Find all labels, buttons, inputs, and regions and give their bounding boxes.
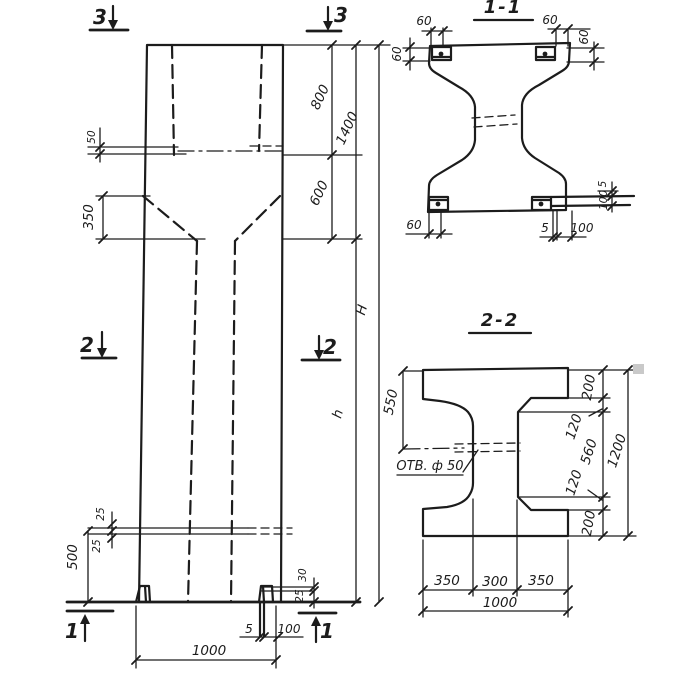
marker-label: 3 xyxy=(93,5,107,29)
marker-arrow-head xyxy=(80,614,90,624)
section-marker-1-right: 1 xyxy=(299,613,336,643)
anchor-dot-bottom-right xyxy=(539,202,544,207)
dim-label-1400: 1400 xyxy=(333,109,362,147)
section-2-2-view: 2-2 ОТВ. ф 50 550 200 120 560 120 200 12… xyxy=(381,310,644,617)
hole-centerline xyxy=(404,448,464,449)
marker-arrow-head xyxy=(108,20,118,30)
dim-label-100-foot: 100 xyxy=(278,622,301,636)
hole-leader xyxy=(463,450,478,472)
dim-label-30: 30 xyxy=(297,568,309,582)
section-marker-3-right: 3 xyxy=(307,3,348,31)
marker-label: 2 xyxy=(323,335,337,359)
section-1-1-outline xyxy=(428,43,570,212)
dim-label-h: h xyxy=(329,408,347,420)
marker-label: 2 xyxy=(80,333,94,357)
dim-label-200-top: 200 xyxy=(579,373,599,401)
anchor-dot-bottom-left xyxy=(436,202,441,207)
dim-label-350: 350 xyxy=(81,204,97,230)
column-feet xyxy=(136,586,273,602)
dim-label-60-tr-v: 60 xyxy=(577,29,591,45)
dim-label-120-bottom: 120 xyxy=(563,468,586,497)
hidden-taper-edges xyxy=(143,196,280,241)
scan-artifact xyxy=(633,364,644,374)
section-marker-2-left: 2 xyxy=(80,332,116,358)
dim-label-5-right: 5 xyxy=(597,180,609,187)
column-outline xyxy=(139,45,283,602)
section-marker-3-left: 3 xyxy=(90,5,128,30)
dim-label-800: 800 xyxy=(308,82,333,112)
dim-label-60-tr-h: 60 xyxy=(542,13,558,27)
dim-label-60-tl-h: 60 xyxy=(416,14,432,28)
embed-plates xyxy=(429,47,555,210)
hidden-cap-edges xyxy=(172,45,262,155)
drawing-sheet: 50 350 800 1400 600 H h 25 25 500 30 25 … xyxy=(0,0,700,700)
marker-label: 1 xyxy=(65,619,79,643)
section-1-1-view: 1-1 60 60 60 60 60 5 100 5 100 xyxy=(390,0,634,241)
dim-label-25-foot: 25 xyxy=(294,589,306,603)
marker-label: 1 xyxy=(320,619,334,643)
anchor-dot-top-right xyxy=(543,52,548,57)
technical-drawing: 50 350 800 1400 600 H h 25 25 500 30 25 … xyxy=(0,0,700,700)
marker-arrow-head xyxy=(97,348,107,358)
dim-label-5-br: 5 xyxy=(541,221,549,235)
dim-label-350-left: 350 xyxy=(434,573,460,589)
elevation-view: 50 350 800 1400 600 H h 25 25 500 30 25 … xyxy=(65,3,390,668)
marker-arrow-head xyxy=(323,21,333,31)
dim-label-560: 560 xyxy=(578,437,601,466)
dim-label-100-br: 100 xyxy=(571,221,594,235)
dim-label-120-top: 120 xyxy=(563,412,586,441)
section-1-1-hole-hidden xyxy=(472,115,517,127)
foot-anchor-plate xyxy=(260,602,264,636)
hole-label: ОТВ. ф 50 xyxy=(396,459,463,474)
section-1-1-title: 1-1 xyxy=(484,0,523,18)
section-2-2-title: 2-2 xyxy=(481,310,520,331)
hidden-web-edges xyxy=(188,241,235,602)
dim-label-5-foot: 5 xyxy=(245,622,253,636)
dim-label-200-bottom: 200 xyxy=(579,509,599,537)
dim-label-25-bottom: 25 xyxy=(91,539,103,553)
dim-label-550: 550 xyxy=(381,388,402,417)
dim-label-100-right: 100 xyxy=(598,190,610,210)
dim-label-600: 600 xyxy=(307,178,332,208)
dim-label-350-right: 350 xyxy=(528,573,554,589)
section-marker-2-right: 2 xyxy=(302,335,340,360)
dim-label-60-bl: 60 xyxy=(406,218,422,232)
anchor-dot-top-left xyxy=(439,52,444,57)
dim-lines-right xyxy=(283,45,390,602)
bottom-embed-bar-hidden xyxy=(248,528,292,534)
dim-label-1200: 1200 xyxy=(604,432,630,470)
dim-label-500: 500 xyxy=(65,544,81,570)
dim-label-1000-22: 1000 xyxy=(483,595,517,611)
section-marker-1-left: 1 xyxy=(65,611,113,643)
marker-label: 3 xyxy=(334,3,348,27)
dim-label-1000: 1000 xyxy=(192,643,226,659)
shelf-plate-strip xyxy=(551,196,634,206)
dim-label-25-top: 25 xyxy=(95,507,107,521)
hole-hidden-edges xyxy=(455,443,520,452)
dim-label-300: 300 xyxy=(482,574,508,590)
dim-label-50: 50 xyxy=(86,130,98,144)
dim-label-60-tl-v: 60 xyxy=(390,46,404,62)
